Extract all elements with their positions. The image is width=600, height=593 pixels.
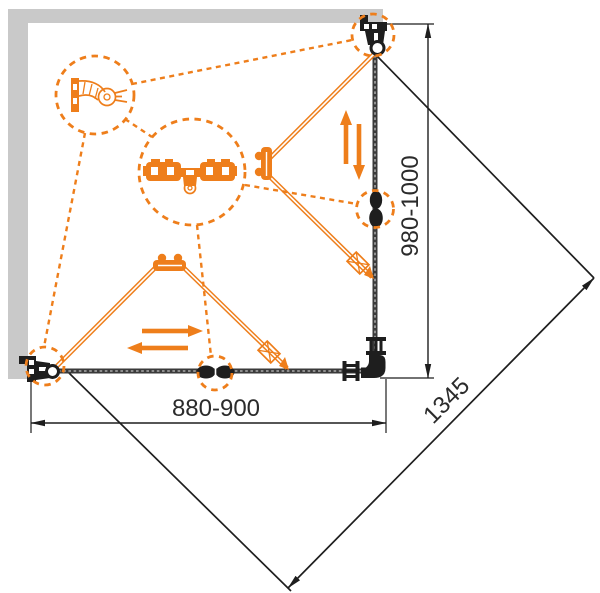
wall-top — [8, 9, 383, 23]
door-trajectories — [57, 54, 374, 370]
arrow-left-icon — [127, 342, 188, 354]
wall-left — [8, 9, 28, 379]
door-bottom — [57, 254, 289, 370]
callout-wall-profile — [56, 56, 134, 134]
floor-guide-icon — [197, 364, 235, 380]
panel-connector-icon — [369, 191, 383, 228]
height-dimension: 980-1000 — [378, 24, 434, 378]
hardware-fittings — [19, 15, 387, 382]
arrow-down-icon — [353, 124, 365, 180]
door-hinge-icon — [153, 254, 186, 271]
width-dimension-label: 880-900 — [172, 395, 260, 422]
height-dimension-label: 980-1000 — [397, 155, 424, 256]
arrow-up-icon — [340, 110, 352, 164]
wall-profile-detail-icon — [71, 78, 127, 112]
corner-elbow-icon — [361, 355, 386, 378]
diagonal-dimension-line — [288, 278, 594, 588]
diagonal-dimension-label: 1345 — [418, 372, 475, 429]
roller-carriage-detail-icon — [143, 159, 237, 194]
panel-coupler-icon — [343, 361, 360, 381]
arrow-right-icon — [142, 325, 203, 337]
door-hinge-icon — [255, 147, 272, 180]
panel-coupler-icon — [366, 337, 386, 355]
walls — [8, 9, 383, 379]
diagonal-construction-lines — [69, 56, 594, 591]
shower-enclosure-diagram: 880-900 980-1000 1345 — [0, 0, 600, 593]
